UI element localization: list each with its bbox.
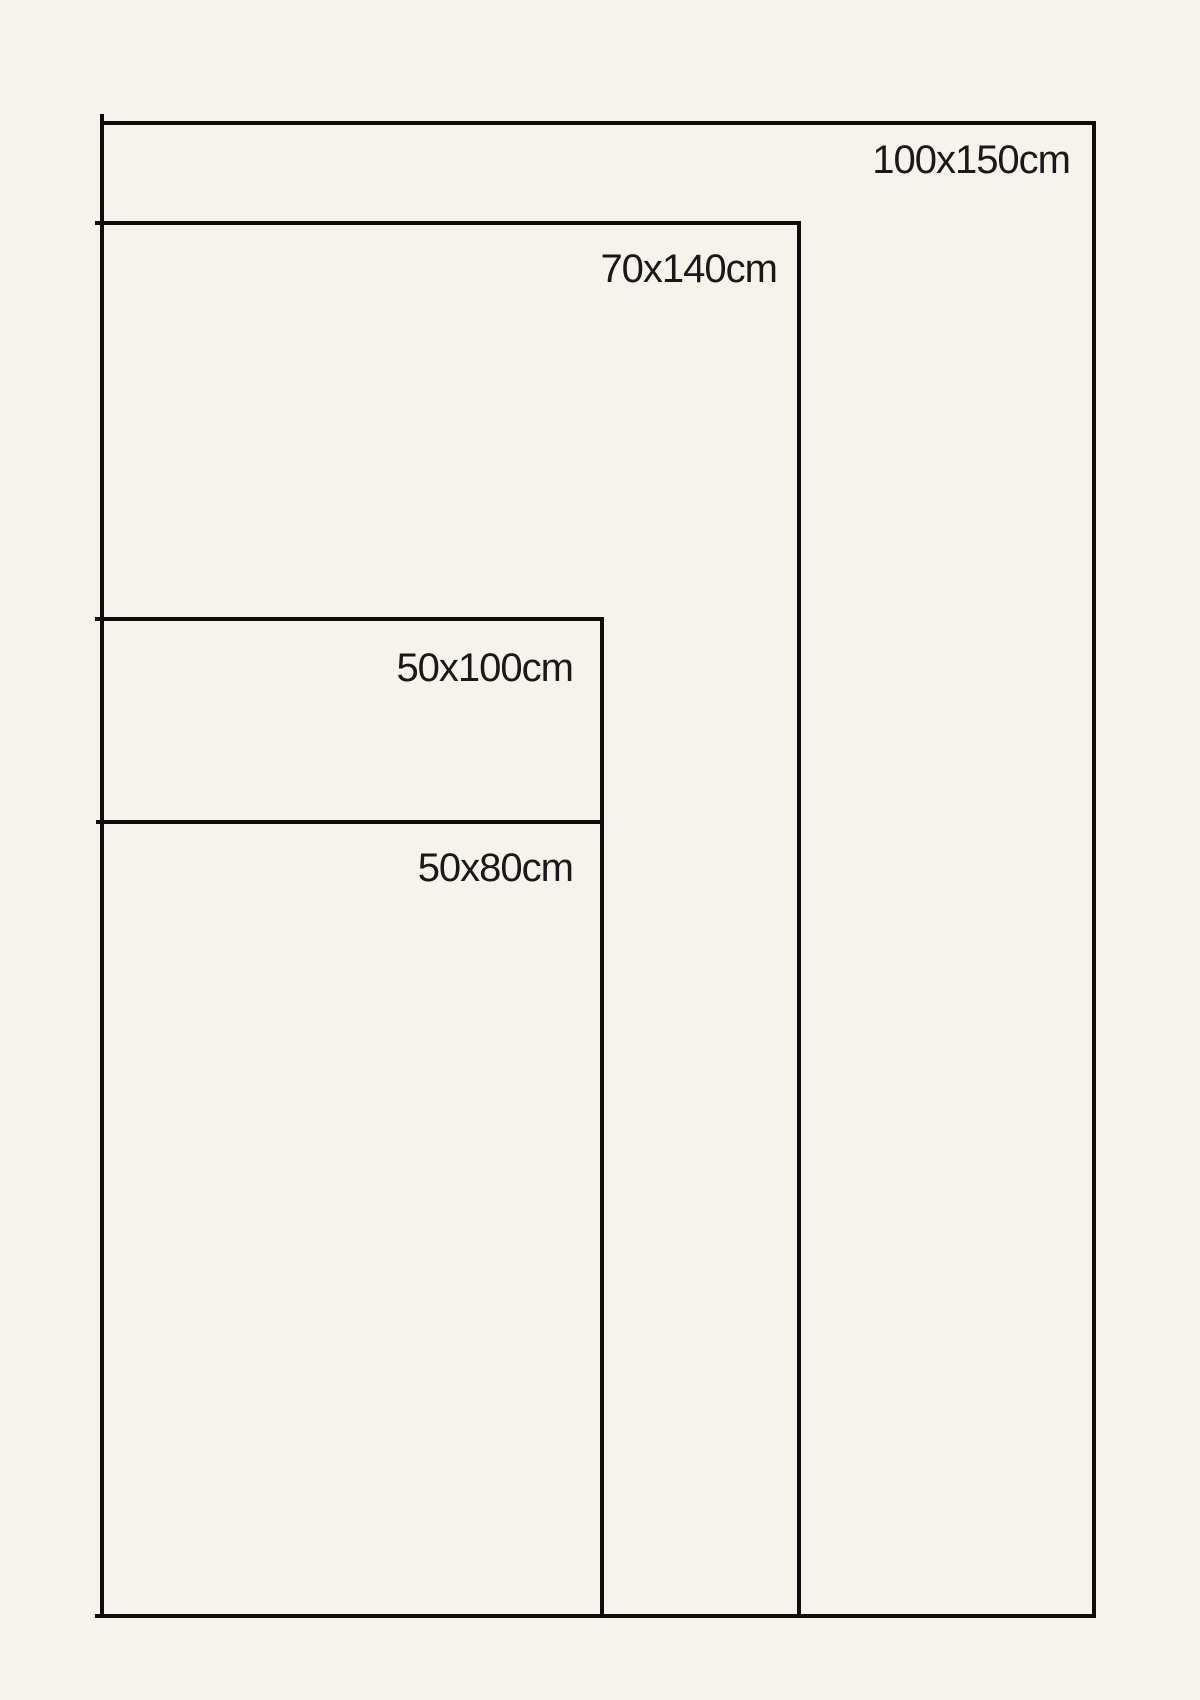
line-overshoot — [95, 221, 104, 225]
size-comparison-diagram: 100x150cm 70x140cm 50x100cm 50x80cm — [0, 0, 1200, 1700]
size-box-50x80: 50x80cm — [100, 820, 604, 1618]
line-overshoot — [95, 1614, 104, 1618]
size-label-100x150: 100x150cm — [872, 140, 1070, 180]
line-overshoot — [95, 617, 104, 621]
size-label-50x80: 50x80cm — [418, 848, 573, 888]
size-label-50x100: 50x100cm — [396, 648, 573, 688]
line-overshoot — [100, 114, 104, 123]
size-label-70x140: 70x140cm — [600, 249, 777, 289]
line-overshoot — [96, 820, 105, 824]
